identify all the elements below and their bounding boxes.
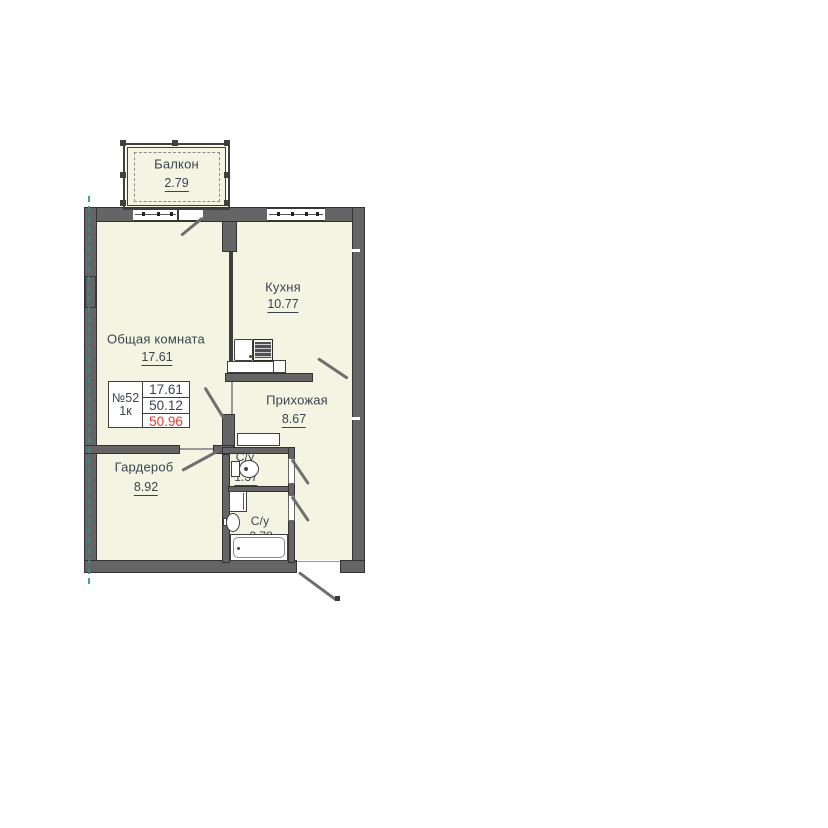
kitchen-counter [227,361,274,373]
living-room-label: Общая комната [107,332,205,347]
axis-line [88,196,90,584]
left-wall-joint [85,276,96,308]
balcony-mullion [120,172,126,178]
wardrobe-label: Гардероб [115,460,174,475]
bottom-wall-right [340,560,365,573]
unit-number: №52 [112,392,139,405]
wardrobe-threshold [180,448,213,450]
balcony-mullion [172,140,178,146]
balcony-door-divider [177,208,179,220]
window-tick [291,212,294,216]
balcony-mullion [224,172,230,178]
living-room-area: 17.61 [141,350,172,366]
bathtub-drain [237,547,240,550]
unit-area-no-balcony: 50.12 [143,398,189,414]
balcony-mullion [120,140,126,146]
washing-machine-detail [243,493,244,510]
living-door-threshold [231,382,233,414]
balcony-mullion [224,200,230,206]
window-tick [305,212,308,216]
window-tick [316,212,319,216]
balcony-mullion [120,200,126,206]
hallway-label: Прихожая [266,393,328,408]
cased-opening [237,433,280,446]
washbasin-icon [226,513,240,532]
washbasin-tap [223,518,227,526]
window-tick [277,212,280,216]
unit-total-area: 50.96 [143,414,189,429]
floor-plan: Балкон 2.79 Кухня 10.77 Общая комната 17… [0,0,828,828]
balcony-label: Балкон [154,157,199,172]
right-wall-notch [352,249,360,252]
window-tick [142,212,145,216]
bathtub-inner [233,537,285,558]
kitchen-area: 10.77 [267,297,298,313]
bath2-label: С/у [251,514,270,528]
washing-machine-icon [229,491,247,512]
unit-type: 1к [119,405,131,418]
unit-info-card: №52 1к 17.61 50.12 50.96 [108,381,190,428]
bath-top-wall [222,447,295,454]
unit-areas-cell: 17.61 50.12 50.96 [143,382,189,427]
window-tick [170,212,173,216]
entrance-threshold [297,561,340,562]
kitchen-hall-wall [225,373,313,382]
balcony-mullion [224,140,230,146]
wardrobe-wall [84,445,180,454]
window-tick [157,212,160,216]
kitchen-label: Кухня [265,280,301,295]
faucet-dot [249,355,252,358]
right-wall-notch [352,417,360,420]
left-wall [84,207,97,573]
living-kitchen-partition [229,252,233,373]
unit-living-area: 17.61 [143,382,189,398]
bottom-wall-left [84,560,297,573]
right-wall [352,207,365,573]
balcony-area: 2.79 [164,176,188,192]
window-pier-stub [222,221,237,252]
kitchen-counter-end [273,360,286,373]
unit-number-cell: №52 1к [109,382,143,427]
entrance-swing-tip [335,596,340,601]
toilet-icon [239,460,259,478]
stove-icon [253,339,273,361]
toilet-flush-dot [244,467,248,471]
entrance-door-swing [298,571,337,601]
hallway-area: 8.67 [282,412,306,428]
wardrobe-area: 8.92 [134,480,158,496]
